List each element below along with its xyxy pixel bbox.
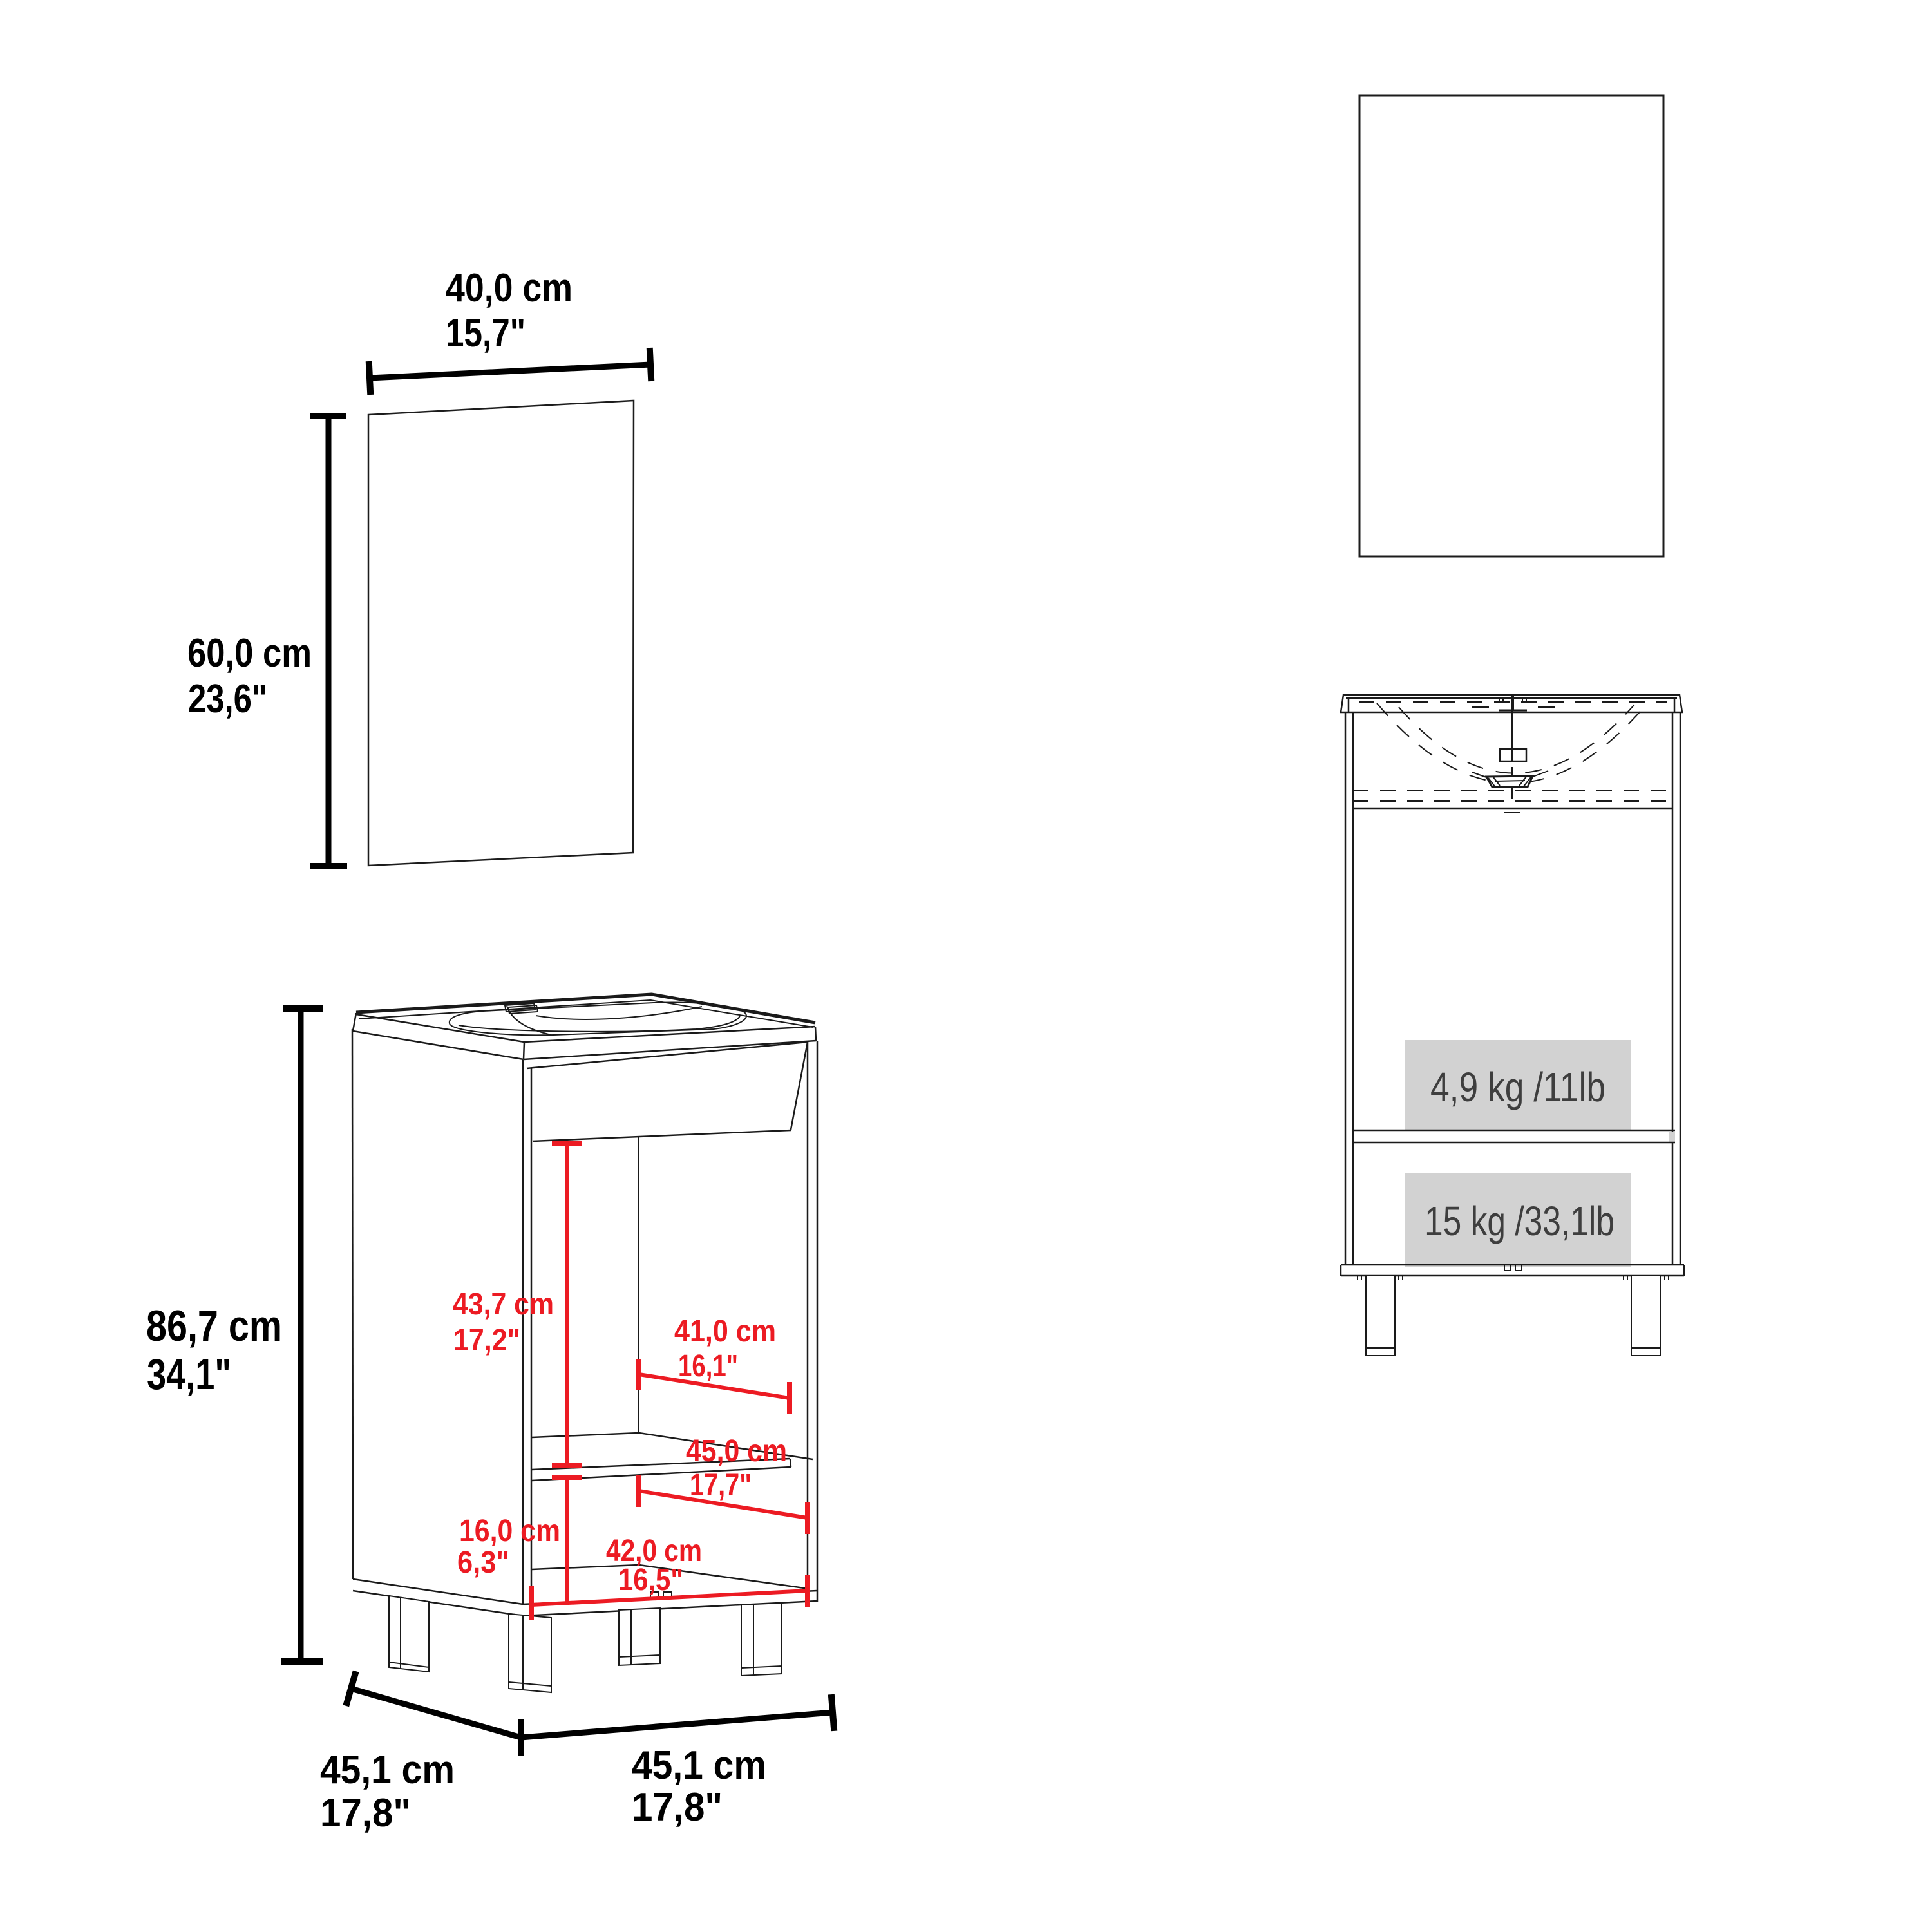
svg-text:15 kg /33,1lb: 15 kg /33,1lb <box>1425 1198 1615 1244</box>
svg-text:6,3": 6,3" <box>457 1546 509 1580</box>
svg-text:43,7 cm: 43,7 cm <box>453 1287 554 1321</box>
svg-text:86,7 cm: 86,7 cm <box>146 1302 282 1350</box>
svg-text:16,5": 16,5" <box>618 1563 683 1597</box>
svg-text:41,0 cm: 41,0 cm <box>674 1314 776 1349</box>
svg-text:17,8": 17,8" <box>632 1785 723 1830</box>
svg-text:60,0 cm: 60,0 cm <box>187 631 312 676</box>
svg-text:45,1 cm: 45,1 cm <box>320 1748 455 1792</box>
svg-text:17,8": 17,8" <box>320 1791 411 1835</box>
svg-text:40,0 cm: 40,0 cm <box>446 266 573 310</box>
svg-text:4,9 kg /11lb: 4,9 kg /11lb <box>1430 1064 1605 1110</box>
svg-text:34,1": 34,1" <box>147 1350 231 1399</box>
svg-text:45,0 cm: 45,0 cm <box>686 1434 787 1468</box>
svg-text:16,0 cm: 16,0 cm <box>459 1514 560 1548</box>
svg-text:17,7": 17,7" <box>690 1468 752 1502</box>
svg-text:16,1": 16,1" <box>678 1349 738 1383</box>
svg-text:15,7": 15,7" <box>446 311 526 355</box>
svg-text:23,6": 23,6" <box>188 677 267 721</box>
svg-text:45,1 cm: 45,1 cm <box>632 1743 766 1788</box>
svg-text:17,2": 17,2" <box>453 1323 520 1358</box>
